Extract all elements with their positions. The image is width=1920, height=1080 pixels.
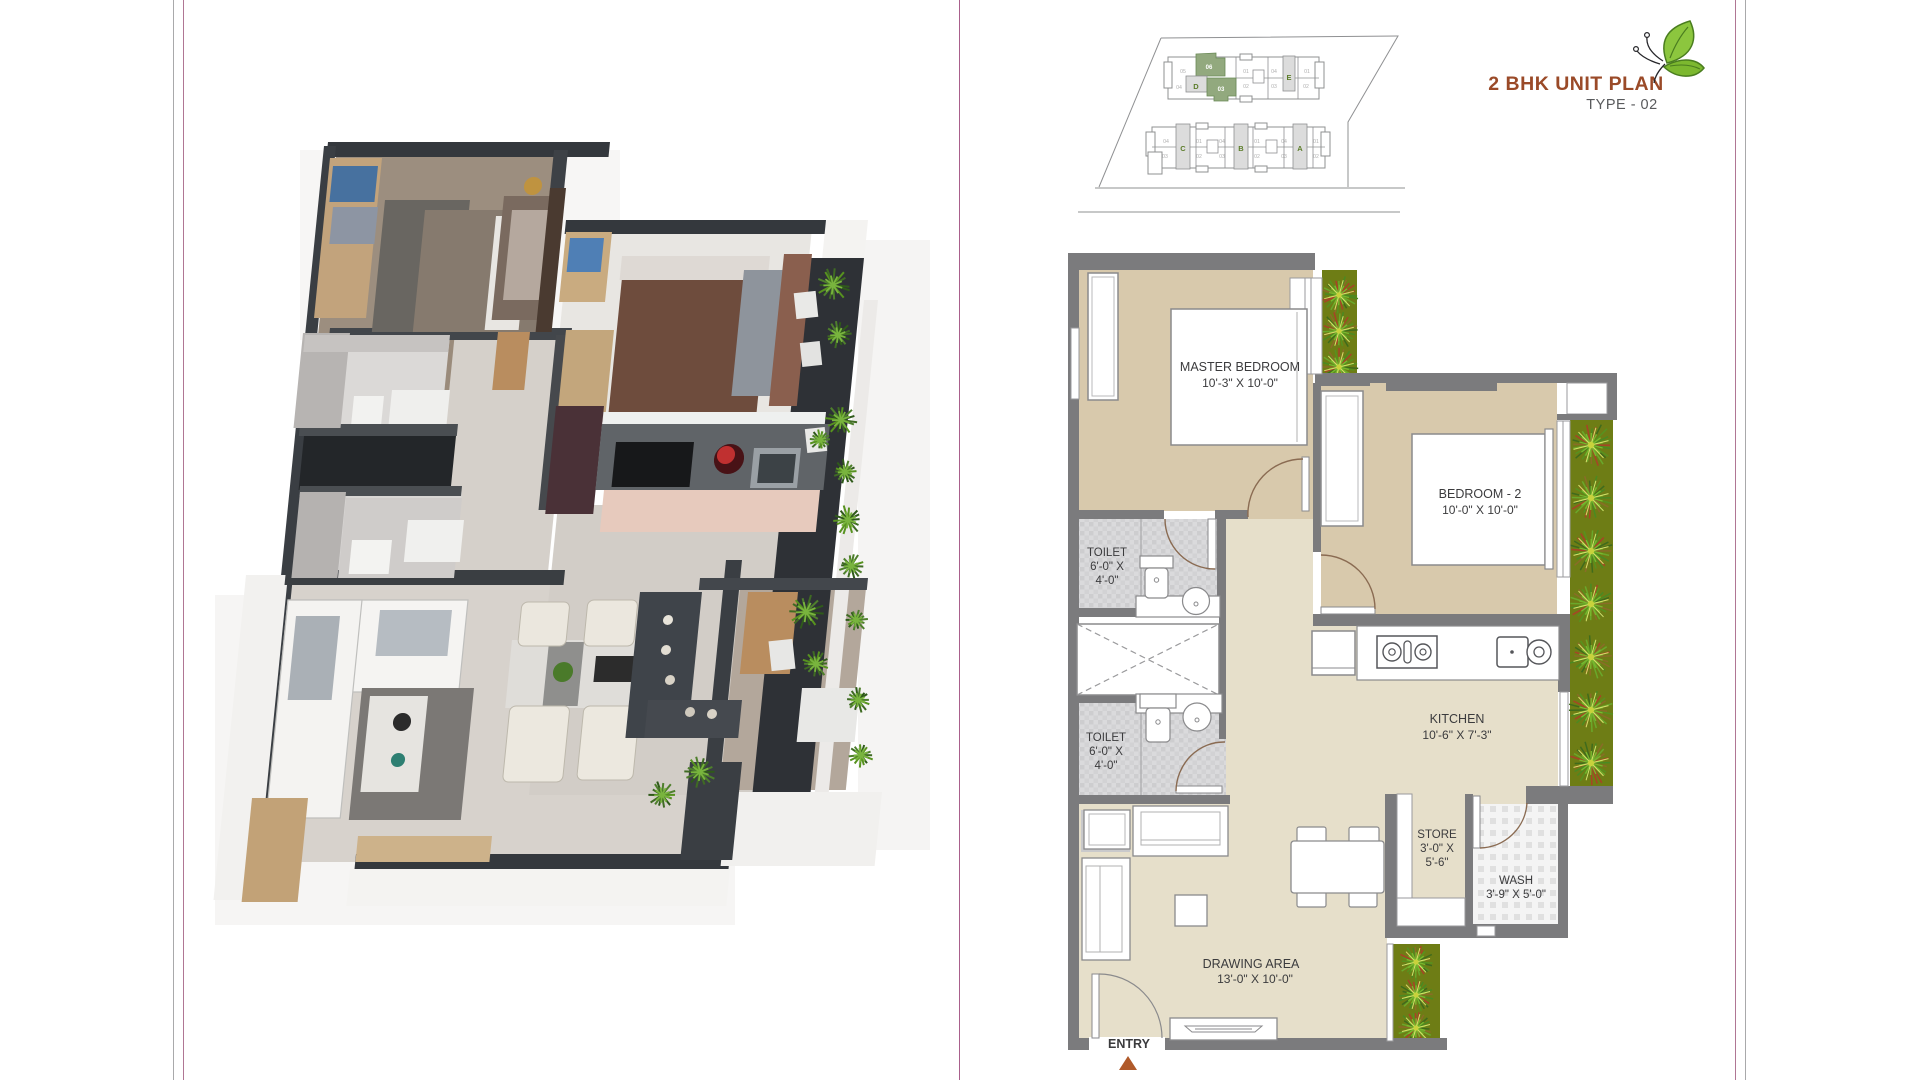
svg-text:2 BHK UNIT PLAN: 2 BHK UNIT PLAN <box>1488 73 1663 95</box>
svg-text:04: 04 <box>1163 139 1169 145</box>
svg-text:01: 01 <box>1243 69 1249 75</box>
svg-text:01: 01 <box>1304 69 1310 75</box>
svg-text:05: 05 <box>1180 69 1186 75</box>
svg-text:02: 02 <box>1243 84 1249 90</box>
svg-text:03: 03 <box>1271 84 1277 90</box>
svg-text:A: A <box>1297 144 1303 153</box>
svg-text:03: 03 <box>1281 154 1287 160</box>
svg-text:04: 04 <box>1176 85 1182 91</box>
svg-text:B: B <box>1238 144 1244 153</box>
svg-text:TYPE - 02: TYPE - 02 <box>1586 97 1657 113</box>
svg-text:06: 06 <box>1206 65 1213 71</box>
svg-text:02: 02 <box>1303 84 1309 90</box>
svg-text:04: 04 <box>1281 139 1287 145</box>
svg-text:02: 02 <box>1313 154 1319 160</box>
svg-text:02: 02 <box>1196 154 1202 160</box>
svg-text:01: 01 <box>1254 139 1260 145</box>
svg-text:04: 04 <box>1271 69 1277 75</box>
svg-text:01: 01 <box>1313 139 1319 145</box>
svg-text:E: E <box>1286 73 1291 82</box>
svg-text:03: 03 <box>1218 87 1225 93</box>
svg-text:02: 02 <box>1254 154 1260 160</box>
svg-text:03: 03 <box>1162 154 1168 160</box>
svg-text:03: 03 <box>1219 154 1225 160</box>
svg-text:D: D <box>1193 82 1199 91</box>
svg-text:01: 01 <box>1196 139 1202 145</box>
svg-text:04: 04 <box>1219 139 1225 145</box>
svg-text:C: C <box>1180 144 1186 153</box>
